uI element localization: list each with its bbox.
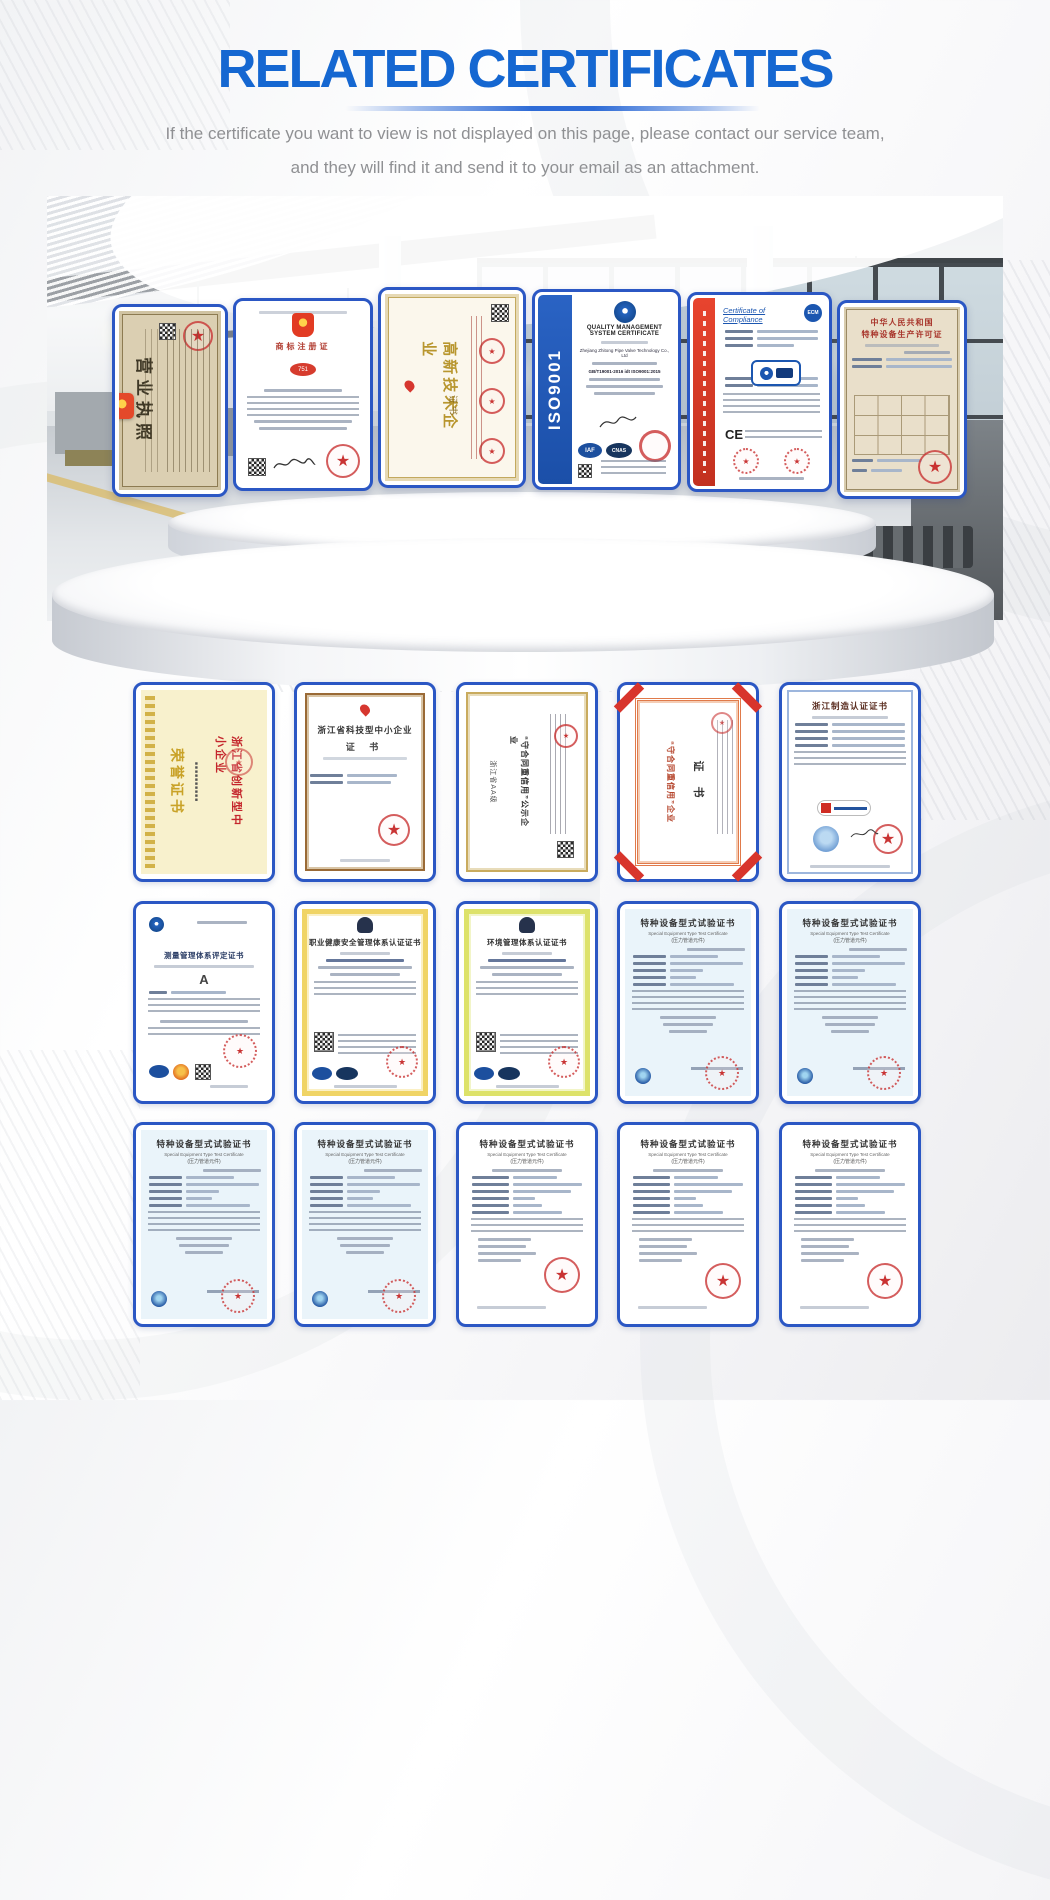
text-block <box>476 981 578 997</box>
blue-stamp <box>813 826 839 852</box>
type-test-en: Special Equipment Type Test Certificate <box>302 1152 428 1157</box>
qr-code <box>491 304 509 322</box>
qr-code <box>248 458 266 476</box>
qr-code <box>195 1064 211 1080</box>
cnas-seal: CNAS <box>606 443 632 458</box>
page-title: RELATED CERTIFICATES <box>0 38 1050 100</box>
grid-cert-type-test-5: 特种设备型式试验证书 Special Equipment Type Test C… <box>456 1122 598 1327</box>
national-emblem-icon <box>119 393 134 419</box>
text-block <box>794 1218 906 1234</box>
certification-body-logo <box>357 917 373 933</box>
iso9001-label: ISO9001 <box>545 349 565 430</box>
type-test-en: Special Equipment Type Test Certificate <box>787 1152 913 1157</box>
stage-cert-compliance: Certificate of Compliance ECM CE ★ ★ <box>687 292 832 492</box>
grid-cert-tech-sme: 浙江省科技型中小企业 证 书 ★ <box>294 682 436 882</box>
iso-holder: Zhejiang Zhitong Pipe Valve Technology C… <box>578 348 671 358</box>
text-block <box>601 460 666 476</box>
red-star-seal: ★ <box>918 450 952 484</box>
grid-cert-measurement: 测量管理体系评定证书 A ★ <box>133 901 275 1104</box>
type-test-title: 特种设备型式试验证书 <box>625 1138 751 1150</box>
type-test-en: Special Equipment Type Test Certificate <box>787 931 913 936</box>
text-block <box>717 720 733 834</box>
text-block <box>745 430 822 442</box>
zhejiang-made-title: 浙江制造认证证书 <box>787 700 913 712</box>
type-test-en: Special Equipment Type Test Certificate <box>464 1152 590 1157</box>
signature <box>272 456 316 472</box>
red-seal: ★ <box>705 1056 739 1090</box>
contract-pre-text: 浙江省AA级 <box>488 760 498 803</box>
cnas-seal <box>336 1067 358 1080</box>
blue-round-logo <box>797 1068 813 1084</box>
tech-sme-title: 浙江省科技型中小企业 <box>302 724 428 736</box>
signature <box>849 828 879 840</box>
type-test-en: Special Equipment Type Test Certificate <box>625 931 751 936</box>
type-test-paren: (压力管道元件) <box>625 1158 751 1165</box>
text-block <box>145 329 163 472</box>
license-title-line2: 特种设备生产许可证 <box>844 329 960 340</box>
type-test-title: 特种设备型式试验证书 <box>302 1138 428 1150</box>
red-star-seal: ★ <box>705 1263 741 1299</box>
blue-oval-logo <box>149 1065 169 1078</box>
environment-title: 环境管理体系认证证书 <box>464 937 590 948</box>
stage-cert-high-tech: 高新技术企业 证书 ★ ★ ★ <box>378 287 526 488</box>
license-table <box>854 395 950 455</box>
license-title-line1: 中华人民共和国 <box>844 317 960 328</box>
type-test-title: 特种设备型式试验证书 <box>464 1138 590 1150</box>
compliance-side-band <box>693 298 715 486</box>
contract-credit-text: “守合同重信用”企业 <box>665 741 676 823</box>
type-test-paren: (压力管道元件) <box>787 1158 913 1165</box>
honor-script-title: 荣誉证书 <box>167 748 187 816</box>
grid-cert-type-test-7: 特种设备型式试验证书 Special Equipment Type Test C… <box>779 1122 921 1327</box>
blue-round-logo <box>151 1291 167 1307</box>
qr-code <box>557 841 574 858</box>
stage-cert-equipment-license: 中华人民共和国 特种设备生产许可证 ★ <box>837 300 967 499</box>
grade-a: A <box>141 972 267 987</box>
type-test-paren: (压力管道元件) <box>464 1158 590 1165</box>
grid-cert-type-test-3: 特种设备型式试验证书 Special Equipment Type Test C… <box>133 1122 275 1327</box>
type-test-title: 特种设备型式试验证书 <box>141 1138 267 1150</box>
red-seal: ★ <box>554 724 578 748</box>
text-block <box>471 1218 583 1234</box>
ecm-logo: ECM <box>804 304 822 322</box>
grid-cert-type-test-4: 特种设备型式试验证书 Special Equipment Type Test C… <box>294 1122 436 1327</box>
red-seal: ★ <box>548 1046 580 1078</box>
page: { "header": { "title": "RELATED CERTIFIC… <box>0 0 1050 1400</box>
type-test-title: 特种设备型式试验证书 <box>625 917 751 929</box>
type-test-en: Special Equipment Type Test Certificate <box>141 1152 267 1157</box>
contract-main-text: “守合同重信用”公示企业 <box>508 736 530 828</box>
text-block <box>471 316 485 459</box>
type-test-title: 特种设备型式试验证书 <box>787 1138 913 1150</box>
red-star-seal: ★ <box>378 814 410 846</box>
flame-logo <box>358 702 372 716</box>
text-block <box>632 990 744 1012</box>
blue-round-logo <box>635 1068 651 1084</box>
red-seal: ★ <box>225 748 253 776</box>
certification-logos <box>817 800 871 816</box>
grid-cert-type-test-6: 特种设备型式试验证书 Special Equipment Type Test C… <box>617 1122 759 1327</box>
ce-mark: CE <box>725 427 743 442</box>
iso-cert-title: QUALITY MANAGEMENT SYSTEM CERTIFICATE <box>574 325 675 337</box>
red-seal: ★ <box>711 712 733 734</box>
contract-credit-subtitle: 证 书 <box>691 760 707 803</box>
stage-cert-trademark: 商标注册证 751 ★ <box>233 298 373 491</box>
red-seal: ★ <box>784 448 810 474</box>
ecm-mark-logo <box>751 360 801 386</box>
type-test-paren: (压力管道元件) <box>787 937 913 944</box>
qr-code <box>578 464 592 478</box>
certification-body-logo <box>519 917 535 933</box>
text-block <box>632 1218 744 1234</box>
type-test-paren: (压力管道元件) <box>302 1158 428 1165</box>
national-emblem-icon <box>292 313 314 337</box>
stage-cert-iso9001: ISO9001 QUALITY MANAGEMENT SYSTEM CERTIF… <box>532 289 681 490</box>
brand-logo: 751 <box>290 363 316 376</box>
ohs-title: 职业健康安全管理体系认证证书 <box>302 937 428 948</box>
grid-cert-environment: 环境管理体系认证证书 ★ <box>456 901 598 1104</box>
red-seal: ★ <box>382 1279 416 1313</box>
compliance-title: Certificate of Compliance <box>723 306 804 324</box>
red-seal: ★ <box>223 1034 257 1068</box>
qr-code <box>314 1032 334 1052</box>
grid-cert-honor: 荣誉证书 ■■■■■■■■■■ 浙江省创新型中小企业 ★ <box>133 682 275 882</box>
text-block <box>794 751 906 767</box>
text-block <box>148 1211 260 1233</box>
iaf-seal: IAF <box>578 443 602 458</box>
measurement-title: 测量管理体系评定证书 <box>141 950 267 961</box>
red-seal: ★ <box>221 1279 255 1313</box>
text-block <box>314 981 416 997</box>
tech-sme-subtitle: 证 书 <box>302 740 428 753</box>
red-seal: ★ <box>386 1046 418 1078</box>
background-stripes <box>0 1050 140 1400</box>
high-tech-title: 高新技术企业 <box>419 341 461 435</box>
iso9001-side-band: ISO9001 <box>538 295 572 484</box>
text-block <box>723 393 820 415</box>
gold-border-strip <box>145 696 155 868</box>
grid-cert-contract-credit: “守合同重信用”企业 证 书 ★ <box>617 682 759 882</box>
podium-lower-tier <box>52 538 994 696</box>
blue-round-logo <box>312 1291 328 1307</box>
text-block <box>794 990 906 1012</box>
iaf-seal <box>474 1067 494 1080</box>
red-seal: ★ <box>867 1056 901 1090</box>
flame-logo <box>402 378 416 392</box>
cnas-seal <box>498 1067 520 1080</box>
grid-cert-type-test-1: 特种设备型式试验证书 Special Equipment Type Test C… <box>617 901 759 1104</box>
type-test-title: 特种设备型式试验证书 <box>787 917 913 929</box>
red-star-seal: ★ <box>867 1263 903 1299</box>
grid-cert-zhejiang-made: 浙江制造认证证书 ★ <box>779 682 921 882</box>
orange-logo <box>173 1064 189 1080</box>
type-test-paren: (压力管道元件) <box>141 1158 267 1165</box>
stage-cert-business-license: ★ 营业执照 <box>112 304 228 497</box>
text-block <box>309 1211 421 1233</box>
text-block <box>167 329 211 472</box>
type-test-en: Special Equipment Type Test Certificate <box>625 1152 751 1157</box>
red-seal: ★ <box>733 448 759 474</box>
grid-cert-contract-public: “守合同重信用”公示企业 浙江省AA级 ★ <box>456 682 598 882</box>
gpc-globe-logo <box>614 301 636 323</box>
grid-cert-type-test-2: 特种设备型式试验证书 Special Equipment Type Test C… <box>779 901 921 1104</box>
subtitle-line-2: and they will find it and send it to you… <box>0 158 1050 178</box>
red-seal <box>639 430 671 462</box>
red-seal: ★ <box>326 444 360 478</box>
iaf-seal <box>312 1067 332 1080</box>
text-block <box>240 385 366 434</box>
company-name: ■■■■■■■■■■ <box>193 762 199 802</box>
qr-code <box>476 1032 496 1052</box>
subtitle-line-1: If the certificate you want to view is n… <box>0 124 1050 144</box>
grid-cert-ohs: 职业健康安全管理体系认证证书 ★ <box>294 901 436 1104</box>
type-test-paren: (压力管道元件) <box>625 937 751 944</box>
org-logo <box>149 917 164 932</box>
trademark-cert-title: 商标注册证 <box>240 341 366 352</box>
high-tech-subtitle: 证书 <box>447 395 460 417</box>
signature <box>598 413 638 431</box>
text-block <box>148 998 260 1016</box>
iso-standard: GB/T19001-2016 idt ISO9001:2015 <box>574 369 675 374</box>
red-star-seal: ★ <box>544 1257 580 1293</box>
title-underline <box>345 106 760 111</box>
